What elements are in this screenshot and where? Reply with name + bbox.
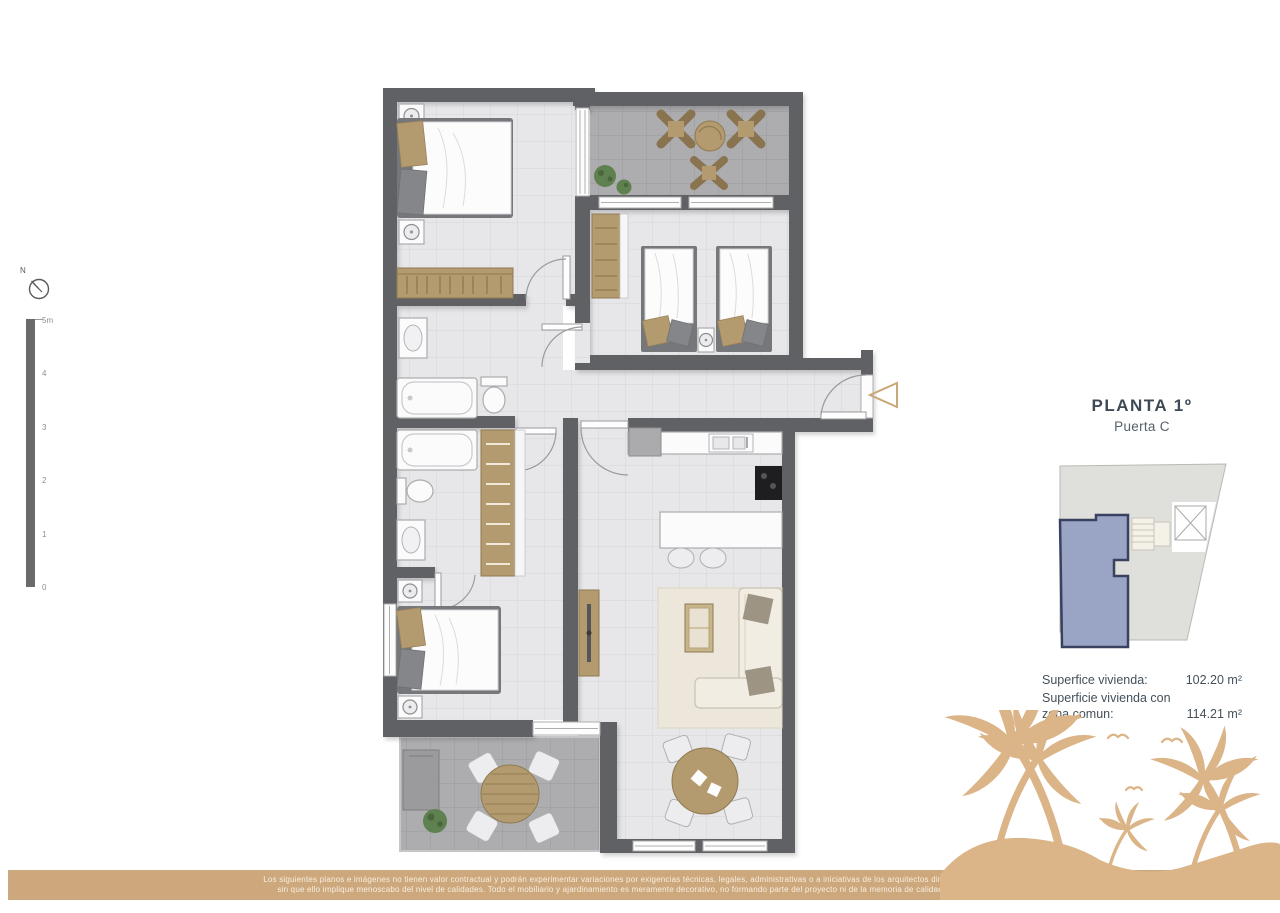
- scale-bar-labels: 5m 4 3 2 1 0: [42, 316, 53, 592]
- bedroom1-door: [563, 256, 570, 299]
- highlighted-unit: [1060, 515, 1128, 647]
- scale-label: 2: [42, 476, 53, 485]
- area-label: Superfice vivienda:: [1042, 672, 1148, 688]
- scale-label: 1: [42, 530, 53, 539]
- oven: [755, 466, 782, 500]
- palm-beach-decoration: [940, 710, 1280, 900]
- page: { "header": { "title": "PLANTA 1º", "sub…: [0, 0, 1280, 913]
- bedroom1-furniture: [397, 104, 513, 298]
- bathtub: [397, 378, 477, 418]
- stool: [700, 548, 726, 568]
- page-title: PLANTA 1º: [1040, 396, 1244, 416]
- corridor-wardrobe: [481, 430, 525, 576]
- storage-cabinet: [403, 750, 439, 810]
- pillow: [397, 649, 425, 689]
- scale-label: 3: [42, 423, 53, 432]
- cushion: [745, 666, 775, 696]
- pillow: [397, 121, 427, 167]
- fridge: [629, 428, 661, 456]
- bird-icon: [1162, 739, 1182, 742]
- wardrobe: [592, 214, 628, 298]
- kitchen-island: [660, 512, 782, 548]
- plant-icon: [617, 180, 632, 195]
- floor-plan: [383, 88, 893, 862]
- north-compass-icon: N: [20, 268, 60, 308]
- stairs: [1132, 518, 1170, 550]
- toilet: [397, 478, 433, 504]
- cushion: [743, 594, 774, 625]
- info-panel: PLANTA 1º Puerta C Superfice vivienda: 1…: [1040, 396, 1244, 724]
- pillow: [397, 169, 427, 215]
- pillow: [742, 320, 769, 347]
- bird-icon: [1126, 787, 1142, 790]
- tv-unit: [579, 590, 599, 676]
- page-subtitle: Puerta C: [1040, 419, 1244, 434]
- compass-icon: [20, 268, 60, 308]
- plant-icon: [594, 165, 616, 187]
- scale-label: 5m: [42, 316, 53, 325]
- scale-bar-rule: [26, 319, 35, 587]
- area-value: 102.20 m²: [1186, 672, 1242, 688]
- entrance-arrow-icon: [866, 381, 902, 409]
- scale-bar: 5m 4 3 2 1 0: [26, 316, 66, 592]
- single-bed: [641, 246, 697, 352]
- north-label: N: [20, 266, 26, 275]
- key-plan: [1054, 460, 1230, 652]
- pillow: [667, 320, 694, 347]
- coffee-table: [685, 604, 713, 652]
- plant-icon: [423, 809, 447, 833]
- area-row: Superfice vivienda: 102.20 m²: [1042, 672, 1242, 688]
- bathtub: [397, 430, 477, 470]
- bird-icon: [1108, 735, 1128, 738]
- single-bed: [716, 246, 772, 352]
- wardrobe: [397, 268, 513, 298]
- kitchen-door: [581, 421, 628, 428]
- stool: [668, 548, 694, 568]
- dining-table: [672, 748, 738, 814]
- entrance-door: [821, 412, 866, 419]
- scale-label: 4: [42, 369, 53, 378]
- toilet: [481, 377, 507, 413]
- bedroom3-door: [435, 573, 441, 609]
- scale-label: 0: [42, 583, 53, 592]
- pillow: [396, 608, 425, 649]
